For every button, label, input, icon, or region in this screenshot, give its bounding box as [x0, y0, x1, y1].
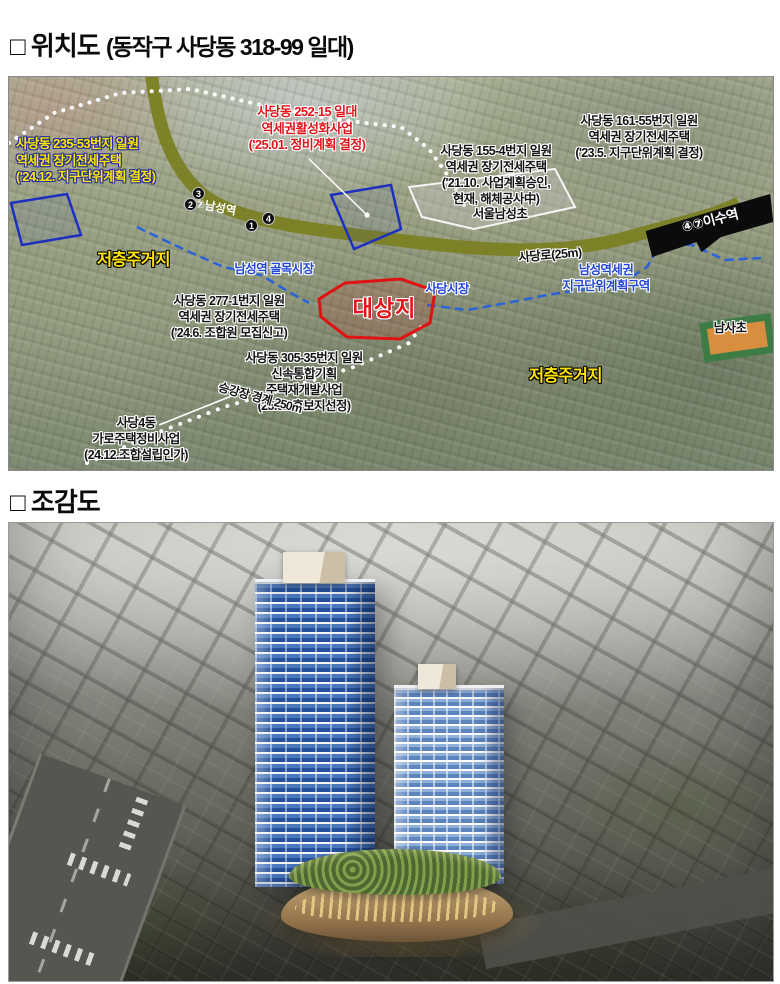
podium — [271, 853, 521, 948]
rooftop-garden — [289, 849, 501, 895]
station-exit-3-badge: 3 — [192, 187, 205, 200]
label-target-site: 대상지 — [337, 295, 432, 323]
label-lowrise-left: 저층주거지 — [97, 250, 170, 271]
location-map-image: 사당동 235-53번지 일원 역세권 장기전세주택 ('24.12. 지구단위… — [8, 76, 774, 471]
station-exit-1-badge: 1 — [245, 219, 258, 232]
label-site-235-53: 사당동 235-53번지 일원 역세권 장기전세주택 ('24.12. 지구단위… — [16, 136, 226, 186]
birdseye-title-main: □ 조감도 — [10, 487, 100, 517]
label-namsung-alley-market: 남성역 골목시장 — [204, 261, 344, 277]
label-namsung-district-plan-zone: 남성역세권 지구단위계획구역 — [531, 262, 681, 294]
location-map-title-main: □ 위치도 — [10, 31, 100, 61]
tower-left — [255, 579, 375, 887]
tower-right-rooftop-box — [418, 664, 456, 689]
location-map-title: □ 위치도 (동작구 사당동 318-99 일대) — [10, 26, 353, 63]
location-map-title-sub: (동작구 사당동 318-99 일대) — [106, 34, 353, 60]
birdseye-title: □ 조감도 — [10, 482, 100, 519]
birdseye-render-image — [8, 522, 774, 982]
station-exit-4-badge: 4 — [262, 212, 275, 225]
leader-dot-252 — [364, 212, 369, 217]
label-site-252-15: 사당동 252-15 일대 역세권활성화사업 ('25.01. 정비계획 결정) — [227, 104, 387, 154]
label-seoul-namsung-elementary: 서울남성초 — [445, 206, 555, 222]
label-site-277-1: 사당동 277-1번지 일원 역세권 장기전세주택 ('24.6. 조합원 모집… — [139, 293, 319, 341]
tower-left-rooftop-box — [283, 552, 345, 583]
label-lowrise-right: 저층주거지 — [529, 366, 602, 387]
label-sadang-4dong: 사당4동 가로주택정비사업 (24.12.조합설립인가) — [53, 415, 219, 463]
site-235-outline — [11, 194, 81, 245]
label-site-161-55: 사당동 161-55번지 일원 역세권 장기전세주택 ('23.5. 지구단위계… — [521, 113, 757, 161]
label-namsa-elementary: 남사초 — [697, 320, 763, 336]
station-exit-2-badge: 2 — [184, 198, 197, 211]
label-sadang-market: 사당시장 — [409, 281, 485, 297]
